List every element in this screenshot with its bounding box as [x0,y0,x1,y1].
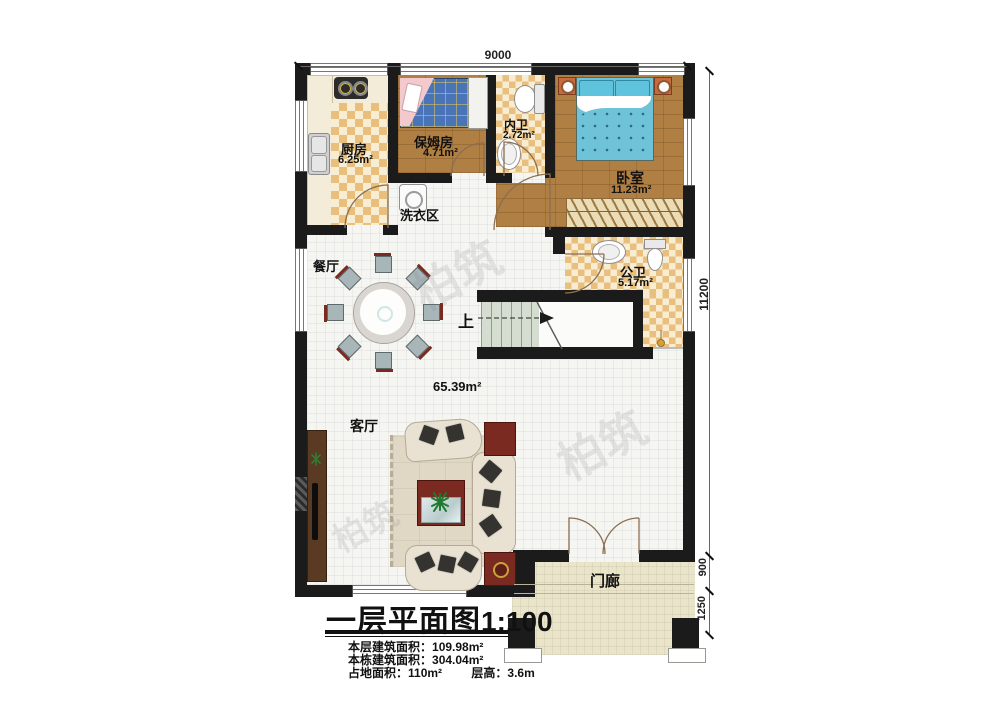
porch-step-pad-right [668,648,706,663]
dining-chair [375,352,392,369]
wall-nanny-bottom [388,173,452,183]
stove-burner-left [338,81,353,96]
bedroom-lamp-left [561,80,575,94]
room-label-living: 客厅 [350,416,378,436]
dining-chair [327,304,344,321]
porch-step-pad-left [504,648,542,663]
tv [312,483,318,540]
dim-line-top [298,66,688,67]
wall-innerbath-bottom [486,173,512,183]
bedroom-duvet [577,108,651,158]
public-bath-nook-floor [643,292,683,347]
wall-kitchen-bottom-b [383,225,398,235]
area-label-nanny: 4.71m² [423,147,458,159]
area-label-bedroom: 11.23m² [611,184,651,196]
room-label-porch: 门廊 [590,570,620,591]
wall-kitchen-bottom-a [295,225,347,235]
window-bedroom-right [683,118,695,186]
stat-label: 本层建筑面积： [348,640,432,654]
wall-bedroom-bottom [545,227,695,237]
window-nanny-top [400,63,532,75]
sofa-pillow [481,488,502,509]
stat-label: 本栋建筑面积： [348,653,432,667]
bedroom-wardrobe [566,198,685,228]
wall-porch-top-left [525,550,569,562]
dim-porch-a-label: 900 [697,558,709,576]
stairs-up-label: 上 [458,308,474,332]
dining-chair [375,256,392,273]
living-area-label: 65.39m² [433,379,481,394]
kitchen-sink-basin-2 [311,155,327,172]
wall-bedroom-left [545,63,555,178]
kitchen-sink-basin-1 [311,136,327,154]
wall-stairs-top [477,290,643,302]
sofa-pillow [436,553,457,574]
stat-label: 占地面积： [348,666,408,680]
inner-bath-toilet-tank [534,84,545,114]
sofa-chaise-top [404,417,484,462]
title-rule-thin [325,636,508,637]
dim-right-label: 11200 [697,278,711,311]
window-dining-left [295,248,307,332]
stat-label: 层高： [471,666,507,680]
area-label-kitchen: 6.25m² [338,154,373,166]
porch-column-right [672,618,699,648]
bedroom-lamp-right [657,80,671,94]
side-table-medallion [493,562,509,578]
dining-table-center [377,306,393,322]
room-label-dining: 餐厅 [313,256,339,275]
window-kitchen-left [295,100,307,172]
wall-pubbath-left [553,237,565,254]
dim-line-right [709,70,710,636]
inner-bath-toilet-bowl [514,85,536,113]
wall-stairs-bottom [477,347,653,359]
stat-value: 110m² [408,666,442,680]
window-kitchen-top [310,63,388,75]
area-label-inner-bath: 2.72m² [503,130,535,141]
bedroom-pillow-right [615,80,650,97]
side-table-top [484,422,516,456]
bedroom-pillow-left [579,80,614,97]
stat-value: 304.04m² [432,653,483,667]
floor-plan-canvas: 厨房 6.25m² 保姆房 4.71m² 内卫 2.72m² 卧室 11.23m… [0,0,1000,706]
wardrobe-rod [568,211,681,212]
wall-kitchen-right [388,63,398,183]
title-rule-thick [325,630,508,634]
stat-value: 3.6m [507,666,534,680]
dim-top-label: 9000 [468,48,528,62]
porch-step-line-2 [514,593,694,594]
window-bedroom-top [638,63,685,75]
inner-bath-sink-inner [501,143,517,165]
nanny-closet [468,77,488,129]
room-label-laundry: 洗衣区 [400,205,439,224]
stat-value: 109.98m² [432,640,483,654]
pubbath-nook-edge [653,347,683,349]
dim-porch-b-label: 1250 [696,596,708,620]
public-bath-sink-inner [598,244,620,260]
wall-ac-unit [295,477,307,511]
hall-floor-strip [545,178,555,227]
area-label-public-bath: 5.17m² [618,277,653,289]
stat-line-3: 占地面积：110m² 层高：3.6m [348,667,535,680]
window-pubbath-right [683,258,695,332]
wall-porch-top-right [639,550,695,562]
stairs-treads [481,302,539,349]
stove-burner-right [353,81,368,96]
wall-stairs-right [633,302,643,349]
coffee-table-glass [421,497,461,523]
